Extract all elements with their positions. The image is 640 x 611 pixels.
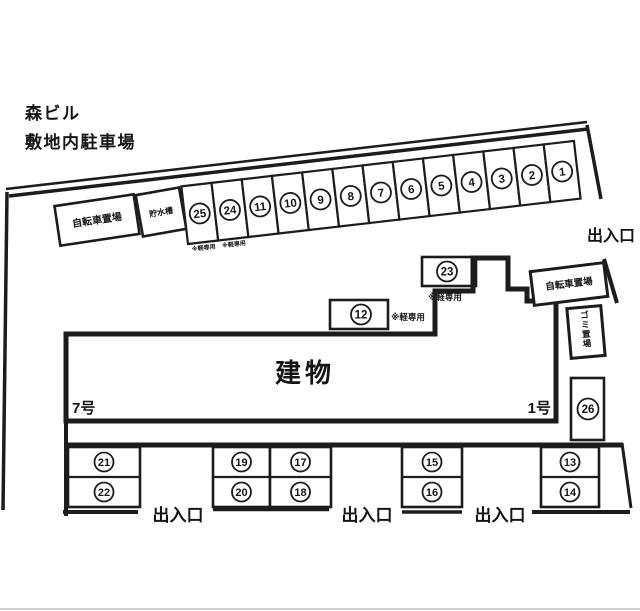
parking-space-24-number: 24 bbox=[223, 204, 238, 217]
parking-column-21-22: 2122 bbox=[68, 447, 140, 507]
parking-space-13-number: 13 bbox=[564, 457, 576, 469]
unit-number-left: 7号 bbox=[72, 400, 95, 417]
parking-space-25-number: 25 bbox=[193, 208, 208, 221]
parking-space-10-number: 10 bbox=[283, 197, 297, 210]
parking-space-21-number: 21 bbox=[98, 457, 110, 469]
parking-column-15-16: 1516 bbox=[402, 447, 462, 507]
kei-only-note-12: ※軽専用 bbox=[391, 312, 425, 322]
parking-column-13-14: 1314 bbox=[541, 447, 599, 507]
bicycle-parking-top: 自転車置場 bbox=[54, 194, 139, 245]
parking-space-2-number: 2 bbox=[528, 170, 536, 183]
entrance-label-bottom-center: 出入口 bbox=[342, 505, 393, 525]
parking-column-17-18: 1718 bbox=[270, 447, 331, 507]
entrance-label-bottom-right: 出入口 bbox=[475, 505, 526, 525]
parking-space-9-number: 9 bbox=[317, 194, 325, 207]
parking-column-19-20: 1920 bbox=[213, 447, 270, 507]
parking-space-12: 12 ※軽専用 bbox=[330, 300, 425, 329]
title-building-name: 森ビル bbox=[25, 103, 81, 123]
parking-space-12-number: 12 bbox=[355, 310, 368, 322]
bicycle-parking-right: 自転車置場 bbox=[530, 263, 608, 306]
parking-space-26-number: 26 bbox=[582, 404, 595, 416]
parking-space-16-number: 16 bbox=[426, 487, 438, 499]
parking-space-14-number: 14 bbox=[564, 487, 577, 499]
entrance-label-top-right: 出入口 bbox=[587, 226, 635, 245]
boundary-top-right-line bbox=[587, 125, 601, 199]
bottom-parking-rows: 21221920171815161314 bbox=[68, 447, 599, 507]
building-outline bbox=[66, 258, 556, 421]
parking-space-1: 1 bbox=[544, 141, 581, 202]
boundary-left-line bbox=[3, 192, 7, 510]
building-label: 建物 bbox=[275, 358, 335, 388]
site-plan-canvas: 森ビル 敷地内駐車場 出入口 自転車置場 貯水槽 25※軽専用24※軽専用111… bbox=[0, 0, 640, 611]
parking-space-17-number: 17 bbox=[294, 457, 306, 469]
entrance-label-bottom-left: 出入口 bbox=[153, 505, 204, 525]
garbage-area: ゴミ置場 bbox=[567, 306, 605, 359]
parking-space-19-number: 19 bbox=[235, 457, 247, 469]
parking-space-20-number: 20 bbox=[235, 487, 247, 499]
water-tank: 貯水槽 bbox=[136, 187, 187, 236]
parking-space-22-number: 22 bbox=[98, 487, 110, 499]
parking-space-6-number: 6 bbox=[407, 184, 415, 197]
parking-space-23-number: 23 bbox=[441, 267, 454, 279]
parking-space-11-number: 11 bbox=[254, 201, 268, 214]
parking-space-15-number: 15 bbox=[426, 457, 438, 469]
parking-space-3-number: 3 bbox=[498, 173, 506, 186]
parking-lot-site-plan: 森ビル 敷地内駐車場 出入口 自転車置場 貯水槽 25※軽専用24※軽専用111… bbox=[0, 0, 640, 611]
unit-number-right: 1号 bbox=[528, 400, 551, 417]
parking-space-18-number: 18 bbox=[294, 487, 306, 499]
parking-space-26: 26 bbox=[571, 378, 604, 440]
parking-space-7-number: 7 bbox=[377, 187, 385, 200]
title-subtitle: 敷地内駐車場 bbox=[25, 132, 136, 152]
parking-space-23: 23 ※軽専用 bbox=[422, 257, 476, 302]
boundary-bottom-right-line bbox=[622, 443, 631, 508]
diagonal-parking-row: 25※軽専用24※軽専用1110987654321 bbox=[181, 141, 581, 253]
